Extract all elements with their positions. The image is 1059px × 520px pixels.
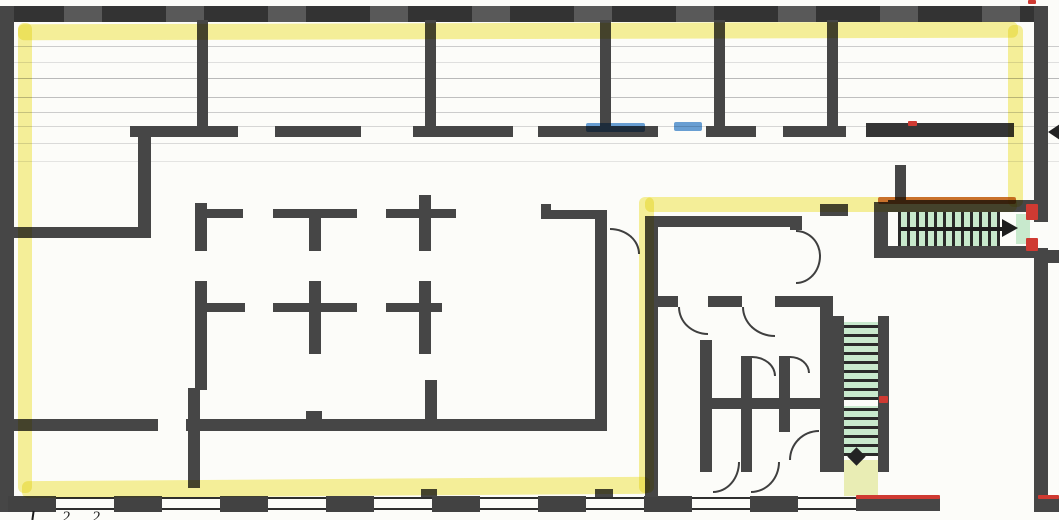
cubicle-wall <box>425 380 437 421</box>
scan-line <box>0 62 1059 63</box>
outer-wall-right-lower <box>1034 248 1048 502</box>
scan-line <box>0 161 1059 162</box>
cubicle-wall <box>207 303 245 312</box>
wall-segment <box>741 356 752 472</box>
cutoff-annotation: 2 2 <box>24 509 164 520</box>
door-arc <box>713 462 740 493</box>
wall-segment <box>708 296 742 307</box>
door-arc <box>789 430 819 460</box>
stair-wall <box>888 246 1036 258</box>
highlighter-path-mid-horizontal <box>645 197 1017 212</box>
highlighter-path-bottom <box>22 477 650 498</box>
cubicle-wall <box>309 332 321 354</box>
scan-line <box>0 143 1059 144</box>
red-mark <box>856 495 940 499</box>
highlighter-path-left <box>18 23 32 493</box>
door-arc <box>610 228 640 254</box>
cubicle-wall <box>419 312 431 332</box>
highlighter-path-mid-vertical <box>639 197 654 493</box>
wall-segment <box>658 296 678 307</box>
cubicle-wall <box>195 281 207 333</box>
corridor-wall-segment <box>706 126 756 137</box>
scanned-floor-plan: 2 2 <box>0 0 1059 520</box>
door-arc <box>752 356 776 376</box>
red-mark <box>879 396 888 403</box>
door-arc <box>790 356 810 373</box>
wall-segment <box>779 356 790 432</box>
outer-wall-left <box>0 6 14 512</box>
cubicle-wall <box>273 303 357 312</box>
corridor-wall-segment <box>783 126 846 137</box>
highlighter-path-right <box>1008 25 1023 207</box>
double-door-arc <box>796 256 821 284</box>
wall-segment <box>790 216 802 230</box>
wall-segment <box>186 419 607 431</box>
staircase-lower-treads <box>844 322 878 400</box>
red-mark <box>908 121 917 126</box>
stair-direction-line <box>900 227 1006 231</box>
cubicle-wall <box>309 209 321 251</box>
wall-segment <box>700 398 833 409</box>
door-arc <box>678 307 708 335</box>
cubicle-wall <box>386 303 442 312</box>
cutoff-annotation-text: 2 2 <box>62 509 109 520</box>
stair-wall <box>878 316 889 472</box>
cubicle-wall <box>419 332 431 354</box>
door-arc <box>751 462 780 493</box>
wall-segment <box>658 216 792 227</box>
scan-line <box>0 97 1059 98</box>
scan-line <box>0 112 1059 113</box>
red-mark <box>1038 495 1059 499</box>
red-mark <box>1026 204 1038 220</box>
cubicle-wall <box>419 281 431 303</box>
scan-line <box>0 46 1059 47</box>
outer-wall-bottom-right <box>856 497 940 511</box>
corridor-wall-segment <box>275 126 361 137</box>
red-mark <box>1026 238 1038 251</box>
blue-mark <box>586 123 645 132</box>
scan-line <box>0 78 1059 79</box>
door-arc <box>742 307 775 337</box>
corridor-wall-segment <box>413 126 513 137</box>
cubicle-wall <box>207 209 243 218</box>
wall-segment <box>595 218 607 430</box>
wall-segment <box>306 411 322 420</box>
red-mark <box>1028 0 1036 4</box>
outer-wall-top <box>0 6 1048 22</box>
wall-segment <box>12 419 158 431</box>
stair-wall <box>832 316 844 472</box>
wall-segment <box>138 126 160 137</box>
wall-segment <box>775 296 822 307</box>
cubicle-wall <box>309 312 321 332</box>
outer-wall-right-extension <box>1046 250 1059 263</box>
cubicle-wall <box>309 281 321 303</box>
cutoff-annotation-tick <box>31 511 34 520</box>
cubicle-wall <box>419 209 431 251</box>
arrow-right-icon <box>1002 219 1018 237</box>
wall-segment <box>188 388 200 488</box>
wall-segment <box>138 126 151 238</box>
arrow-left-icon <box>1048 124 1059 140</box>
double-door-arc <box>796 230 821 256</box>
cubicle-wall <box>195 333 207 390</box>
stair-landing <box>844 460 878 496</box>
outer-wall-right-upper <box>1034 6 1048 222</box>
cubicle-wall <box>195 203 207 251</box>
blue-mark <box>674 122 702 131</box>
corridor-wall-segment <box>866 123 1014 137</box>
cubicle-wall <box>419 195 431 209</box>
staircase-lower-treads <box>844 406 878 456</box>
highlighter-path-top <box>18 22 1018 41</box>
